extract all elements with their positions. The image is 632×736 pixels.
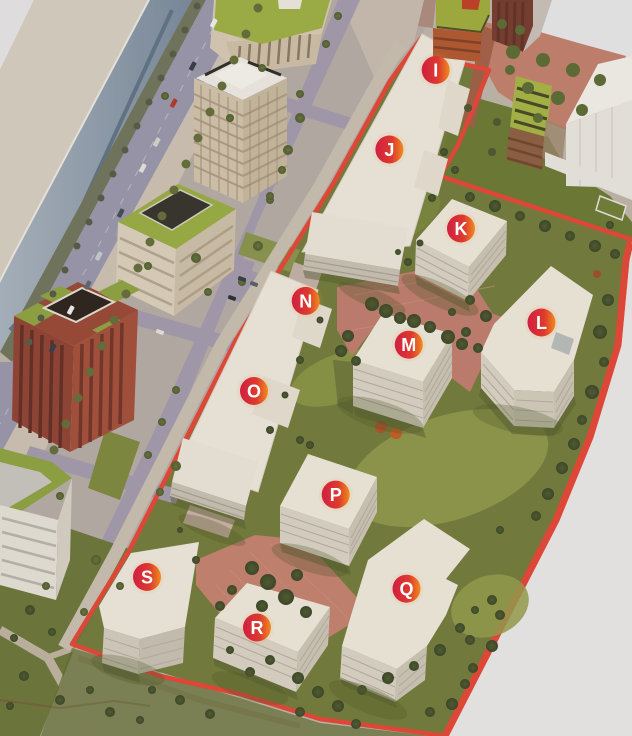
svg-text:N: N [299, 291, 312, 311]
svg-text:R: R [251, 618, 264, 638]
svg-text:M: M [401, 335, 416, 355]
svg-text:O: O [247, 382, 261, 402]
svg-text:K: K [455, 219, 468, 239]
svg-text:Q: Q [399, 579, 413, 599]
svg-text:I: I [433, 61, 438, 81]
svg-text:P: P [330, 485, 342, 505]
svg-text:L: L [536, 313, 547, 333]
svg-text:J: J [384, 140, 394, 160]
svg-text:S: S [141, 568, 153, 588]
